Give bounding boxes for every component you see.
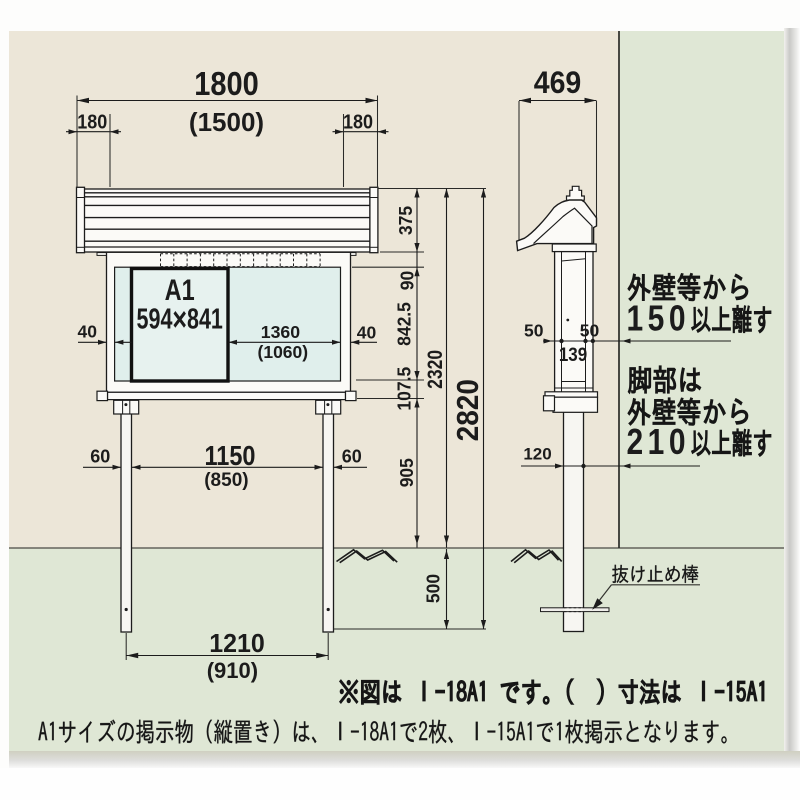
svg-text:1360: 1360 — [261, 322, 301, 342]
svg-text:2320: 2320 — [425, 350, 448, 389]
svg-text:40: 40 — [357, 323, 377, 343]
svg-text:(910): (910) — [207, 658, 258, 683]
svg-text:(1500): (1500) — [189, 107, 264, 137]
svg-text:120: 120 — [523, 445, 551, 464]
svg-text:375: 375 — [396, 206, 416, 235]
svg-text:180: 180 — [77, 110, 107, 133]
svg-text:2820: 2820 — [451, 379, 486, 441]
svg-text:1800: 1800 — [194, 65, 259, 102]
svg-text:(1060): (1060) — [258, 342, 309, 362]
svg-text:594×841: 594×841 — [137, 301, 223, 339]
svg-text:50: 50 — [524, 321, 544, 341]
svg-text:50: 50 — [580, 321, 600, 341]
svg-text:210: 210 — [627, 422, 691, 462]
svg-text:60: 60 — [90, 447, 110, 467]
svg-text:500: 500 — [423, 574, 443, 603]
svg-text:90: 90 — [397, 271, 417, 290]
svg-text:180: 180 — [343, 110, 373, 133]
svg-text:905: 905 — [397, 458, 417, 487]
svg-text:469: 469 — [534, 66, 582, 101]
svg-text:1150: 1150 — [205, 441, 256, 471]
svg-text:(850): (850) — [204, 470, 248, 491]
svg-text:60: 60 — [342, 447, 362, 467]
svg-text:139: 139 — [559, 343, 587, 365]
svg-text:150: 150 — [627, 299, 691, 339]
svg-text:40: 40 — [77, 322, 97, 342]
svg-text:1210: 1210 — [209, 629, 265, 658]
svg-text:842.5: 842.5 — [394, 302, 414, 346]
svg-text:107.5: 107.5 — [394, 367, 414, 411]
